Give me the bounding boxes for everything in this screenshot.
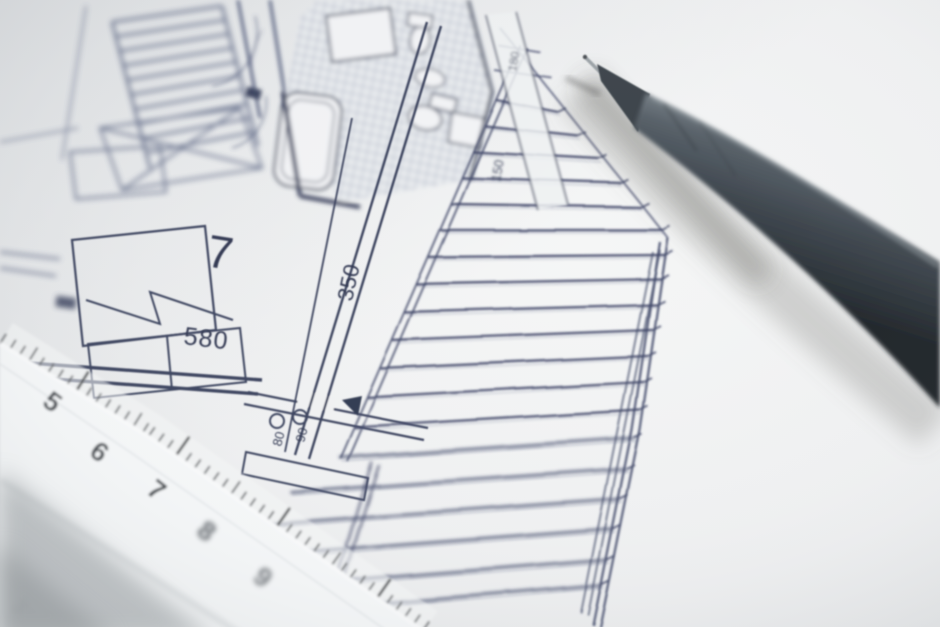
dim-580-label: 580 — [182, 322, 230, 355]
wc-tank — [407, 12, 433, 28]
floorplan-photo: 7 580 350 80 90 180 150 — [0, 0, 940, 627]
shower-fixture — [326, 8, 396, 62]
bathroom-drawing — [272, 0, 492, 207]
photo-floorplan-scene: 7 580 350 80 90 180 150 — [0, 0, 940, 627]
